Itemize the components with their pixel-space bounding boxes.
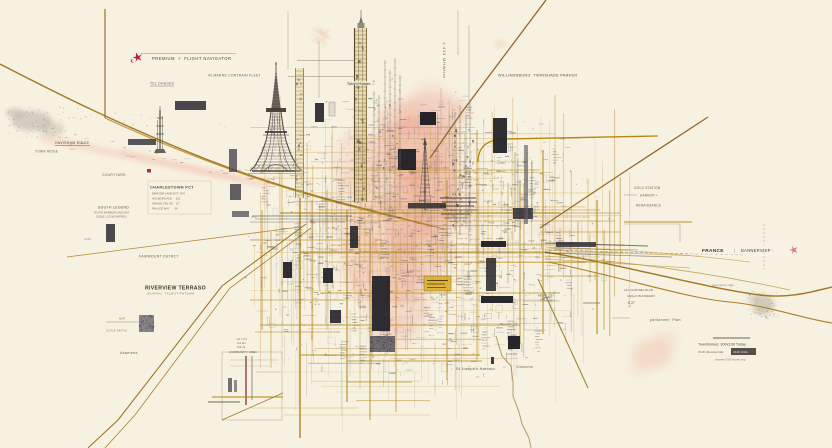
- svg-text:1.435 MHWtrm: 1.435 MHWtrm: [442, 42, 447, 79]
- svg-text:governance ridge: governance ridge: [712, 283, 734, 287]
- svg-text:MERIT CITY: MERIT CITY: [538, 294, 554, 298]
- svg-text:HAVISHAM RIDGE: HAVISHAM RIDGE: [55, 141, 90, 145]
- svg-text:CHARLESTOWN PCT: CHARLESTOWN PCT: [150, 185, 194, 190]
- svg-text:SOUTH LEGEND: SOUTH LEGEND: [98, 206, 129, 210]
- svg-text:GRAND CNL RD 87: GRAND CNL RD 87: [152, 202, 180, 206]
- svg-text:St Joseph’s Harbour: St Joseph’s Harbour: [456, 367, 496, 371]
- svg-text:42 MARNE CONTRAIN FLEET: 42 MARNE CONTRAIN FLEET: [208, 74, 261, 78]
- svg-text:LOWER: LOWER: [506, 352, 517, 356]
- svg-text:PALACE WAY 64: PALACE WAY 64: [152, 207, 178, 211]
- svg-text:JOURNAL TALBOT-PHTEAM: JOURNAL TALBOT-PHTEAM: [146, 292, 194, 296]
- svg-text:PAID (Residential):: PAID (Residential):: [698, 350, 724, 354]
- svg-text:LAY CHANNEL BLVD: LAY CHANNEL BLVD: [624, 288, 654, 292]
- svg-text:WILLIAMSBURG TWINSHADE PARKER: WILLIAMSBURG TWINSHADE PARKER: [498, 74, 577, 78]
- svg-text:FRANCE: FRANCE: [702, 248, 724, 254]
- svg-text:Townhomes: 300x100 Today: Townhomes: 300x100 Today: [698, 343, 746, 347]
- svg-text:parliament Plan: parliament Plan: [650, 318, 681, 322]
- svg-text:Tokyo+tower...: Tokyo+tower...: [347, 82, 374, 86]
- svg-text:COMMUNITY AREA: COMMUNITY AREA: [229, 350, 257, 354]
- svg-text:Viamonte: Viamonte: [516, 365, 533, 369]
- svg-text:|: |: [734, 248, 735, 253]
- svg-text:SCALE DETAIL: SCALE DETAIL: [106, 329, 128, 333]
- svg-text:MERCER LANE EXT 204: MERCER LANE EXT 204: [152, 192, 185, 196]
- svg-text:BANNERSHIP :: BANNERSHIP :: [741, 248, 774, 253]
- svg-text:4120 Units: 4120 Units: [733, 350, 748, 354]
- svg-text:FAIRMOUNT DSTRCT: FAIRMOUNT DSTRCT: [139, 255, 179, 259]
- svg-text:0.8 mi: 0.8 mi: [237, 345, 246, 349]
- svg-text:ANGLO BOUNDARY: ANGLO BOUNDARY: [627, 294, 655, 298]
- svg-text:E 27: E 27: [628, 301, 635, 305]
- svg-text:SCALE 1:25 000 APPROX: SCALE 1:25 000 APPROX: [96, 215, 127, 219]
- svg-text:HARBOR +: HARBOR +: [640, 194, 658, 198]
- svg-text:HOLBORN AVE 113: HOLBORN AVE 113: [152, 197, 181, 201]
- svg-text:ROUTE MARKERS AND DIST: ROUTE MARKERS AND DIST: [94, 211, 130, 215]
- svg-text:GOLD STATION: GOLD STATION: [634, 186, 661, 190]
- svg-text:PREMIUM × FLIGHT NAVIGATOR: PREMIUM × FLIGHT NAVIGATOR: [152, 56, 231, 61]
- svg-text:MAP: MAP: [119, 317, 126, 321]
- svg-text:2146: 2146: [84, 237, 91, 241]
- svg-text:RENAISSANCE: RENAISSANCE: [636, 204, 661, 208]
- svg-text:between 5000 houses avg: between 5000 houses avg: [715, 358, 746, 362]
- svg-text:TOWN RIDGE: TOWN RIDGE: [35, 150, 58, 154]
- svg-text:COURTYARD: COURTYARD: [102, 173, 126, 177]
- svg-text:COLONIE: COLONIE: [540, 299, 553, 303]
- svg-text:Asamena: Asamena: [120, 351, 138, 355]
- svg-text:TEL DHEGES: TEL DHEGES: [150, 82, 175, 86]
